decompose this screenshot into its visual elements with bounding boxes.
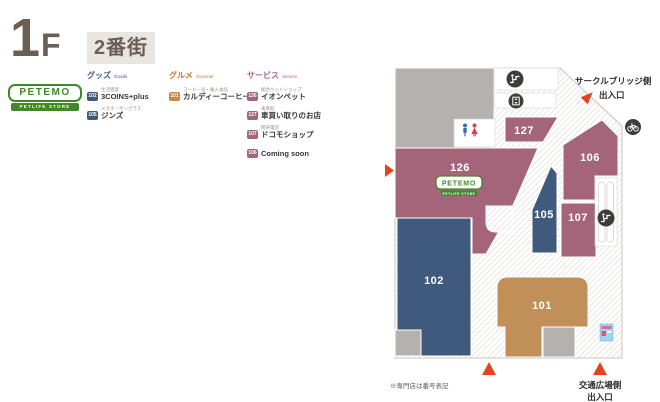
area-number-107: 107 xyxy=(568,212,588,224)
store-name: Coming soon xyxy=(261,149,309,158)
legend-item: 107 携帯電話 ドコモショップ xyxy=(247,125,355,139)
legend-title-jp: グルメ xyxy=(169,71,193,80)
petemo-map-logo-brand: PETEMO xyxy=(442,180,476,187)
legend-title-service: サービスService xyxy=(247,70,355,81)
store-name: 車買い取りのお店 xyxy=(261,111,321,120)
exit-arrow-left xyxy=(385,164,394,177)
area-number-126: 126 xyxy=(450,162,470,174)
legend-item: 127 車買取 車買い取りのお店 xyxy=(247,106,355,120)
floor-map-page: 1 F 2番街 PETEMO PETLIFE STORE グッズGoods 10… xyxy=(0,0,660,402)
legend-title-goods: グッズGoods xyxy=(87,70,167,81)
utility-box xyxy=(494,93,556,108)
area-number-101: 101 xyxy=(532,300,552,312)
map-note: ※専門店は番号表記 xyxy=(390,381,449,390)
store-number-badge: 106 xyxy=(247,149,258,158)
store-number-badge: 101 xyxy=(169,92,180,101)
store-number-badge: 105 xyxy=(87,111,98,120)
legend-title-en: Service xyxy=(282,74,297,79)
exit-arrow-bottom-right xyxy=(593,362,607,375)
store-name: イオンペット xyxy=(261,92,306,101)
legend-item: 126 総合ペットショップ イオンペット xyxy=(247,87,355,101)
legend-title-en: Goods xyxy=(114,74,127,79)
store-number-badge: 102 xyxy=(87,92,98,101)
legend-item: 105 メガネ・サングラス ジンズ xyxy=(87,106,167,120)
bicycle-parking-icon xyxy=(625,119,641,135)
floor-number: 1 xyxy=(10,14,40,62)
store-number-badge: 127 xyxy=(247,111,258,120)
legend-item: 102 生活雑貨 3COINS+plus xyxy=(87,87,167,101)
store-name: ジンズ xyxy=(101,111,141,120)
legend-title-jp: グッズ xyxy=(87,71,111,80)
store-number-badge: 107 xyxy=(247,130,258,139)
legend-column-goods: グッズGoods 102 生活雑貨 3COINS+plus 105 メガネ・サン… xyxy=(87,70,167,125)
exit-label-top-line2: 出入口 xyxy=(599,90,625,100)
legend-title-en: Gourmet xyxy=(196,74,214,79)
store-number-badge: 126 xyxy=(247,92,258,101)
legend-title-jp: サービス xyxy=(247,71,279,80)
utility-box xyxy=(494,68,558,90)
legend-item: 101 コーヒー豆・輸入食品 カルディーコーヒー xyxy=(169,87,247,101)
legend-item: 106 Coming soon xyxy=(247,144,355,158)
legend-column-gourmet: グルメGourmet 101 コーヒー豆・輸入食品 カルディーコーヒー xyxy=(169,70,247,106)
photo-kiosk-icon xyxy=(600,324,613,341)
area-number-127: 127 xyxy=(514,125,534,137)
exit-label-top-line1: サークルブリッジ側 xyxy=(575,76,652,86)
petemo-logo: PETEMO PETLIFE STORE xyxy=(8,84,82,111)
area-number-105: 105 xyxy=(534,209,554,221)
exit-label-bottom-line1: 交通広場側 xyxy=(579,380,622,390)
area-number-102: 102 xyxy=(424,275,444,287)
floor-letter: F xyxy=(41,28,61,62)
restroom-icon xyxy=(454,119,495,147)
store-name: カルディーコーヒー xyxy=(183,92,250,101)
exit-label-bottom-line2: 出入口 xyxy=(587,392,613,402)
backroom-block xyxy=(395,330,421,356)
store-name: 3COINS+plus xyxy=(101,92,149,101)
exit-arrow-bottom-center xyxy=(482,362,496,375)
floor-map: 127 126 106 105 107 102 101 PETEMO PETLI… xyxy=(385,58,660,402)
petemo-map-logo-tagline: PETLIFE STORE xyxy=(443,192,476,196)
legend-column-service: サービスService 126 総合ペットショップ イオンペット 127 車買取… xyxy=(247,70,355,163)
area-number-106: 106 xyxy=(580,152,600,164)
floor-indicator: 1 F xyxy=(10,14,61,62)
corridor-notch xyxy=(486,206,512,232)
legend-title-gourmet: グルメGourmet xyxy=(169,70,247,81)
store-name: ドコモショップ xyxy=(261,130,314,139)
petemo-map-logo: PETEMO PETLIFE STORE xyxy=(436,176,482,196)
escalator-icon xyxy=(598,210,615,227)
petemo-logo-brand: PETEMO xyxy=(8,84,82,102)
escalator-icon xyxy=(507,71,524,88)
petemo-logo-tagline: PETLIFE STORE xyxy=(11,103,79,111)
street-name-badge: 2番街 xyxy=(87,32,155,64)
elevator-icon xyxy=(509,94,524,109)
backroom-block xyxy=(543,327,575,357)
